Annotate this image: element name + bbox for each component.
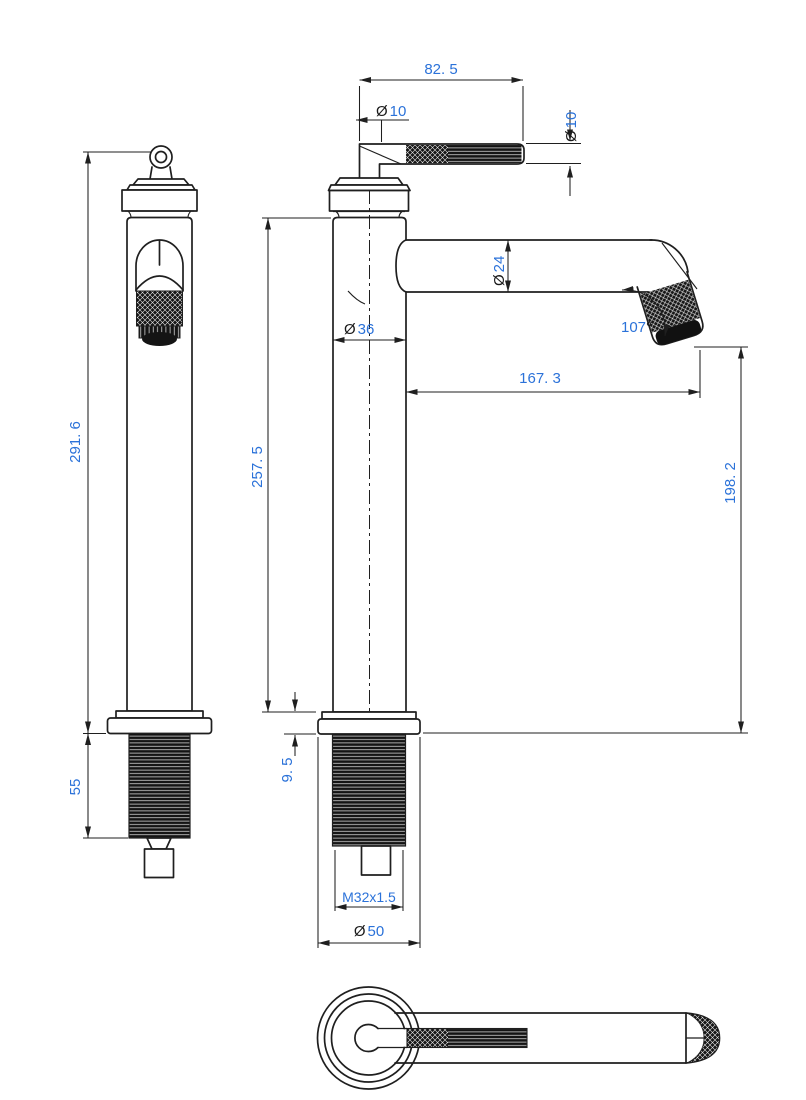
- side-cap: [122, 190, 197, 211]
- front-view: [318, 144, 705, 875]
- front-view-dimensions: 82. 5 Ø10 Ø10 Ø24 Ø36 107° 167. 3 198. 2…: [249, 61, 748, 948]
- dim-spout-angle-label: 107°: [621, 319, 652, 336]
- dim-handle-length-label: 82. 5: [424, 61, 457, 78]
- drawing-canvas: 291. 6 55: [0, 0, 806, 1100]
- front-base-flange: [318, 719, 420, 734]
- front-tail-square: [362, 846, 391, 875]
- front-handle-grip: [448, 145, 522, 163]
- dim-spout-tube-dia-label: Ø24: [491, 256, 508, 286]
- front-handle-knurl: [406, 145, 448, 163]
- dim-body-dia-label: Ø36: [344, 321, 374, 338]
- side-base-flange: [108, 718, 212, 734]
- front-base-step: [322, 712, 416, 719]
- front-spout: [396, 240, 705, 347]
- side-shank-thread: [129, 734, 190, 839]
- side-aerator-knurl: [137, 291, 183, 326]
- technical-drawing: 291. 6 55: [0, 0, 806, 1100]
- top-view: [318, 987, 720, 1089]
- dim-handle-rod-dia-label: Ø10: [563, 112, 580, 142]
- dim-handle-stem-dia-label: Ø10: [376, 103, 406, 120]
- side-aerator-tip: [142, 332, 177, 346]
- dim-shank-length-label: 55: [67, 779, 84, 796]
- dim-base-dia-label: Ø50: [354, 923, 384, 940]
- side-handle-ring: [150, 146, 172, 168]
- side-handle-ring-hole: [156, 152, 167, 163]
- top-handle-stem: [355, 1025, 378, 1052]
- dim-spout-reach-label: 167. 3: [519, 370, 561, 387]
- side-cap-flange-top: [133, 179, 189, 185]
- side-base-step: [116, 711, 203, 718]
- dim-base-thickness-label: 9. 5: [279, 757, 296, 782]
- dim-overall-height-label: 291. 6: [67, 421, 84, 463]
- side-view: [108, 146, 212, 878]
- dim-body-height-label: 257. 5: [249, 446, 266, 488]
- dim-outlet-height-label: 198. 2: [722, 462, 739, 504]
- front-shank-thread: [333, 734, 406, 846]
- dim-shank-thread-label: M32x1.5: [342, 889, 396, 905]
- top-handle-knurl: [407, 1029, 448, 1048]
- side-tail-square: [145, 849, 174, 878]
- top-handle-grip: [448, 1029, 527, 1048]
